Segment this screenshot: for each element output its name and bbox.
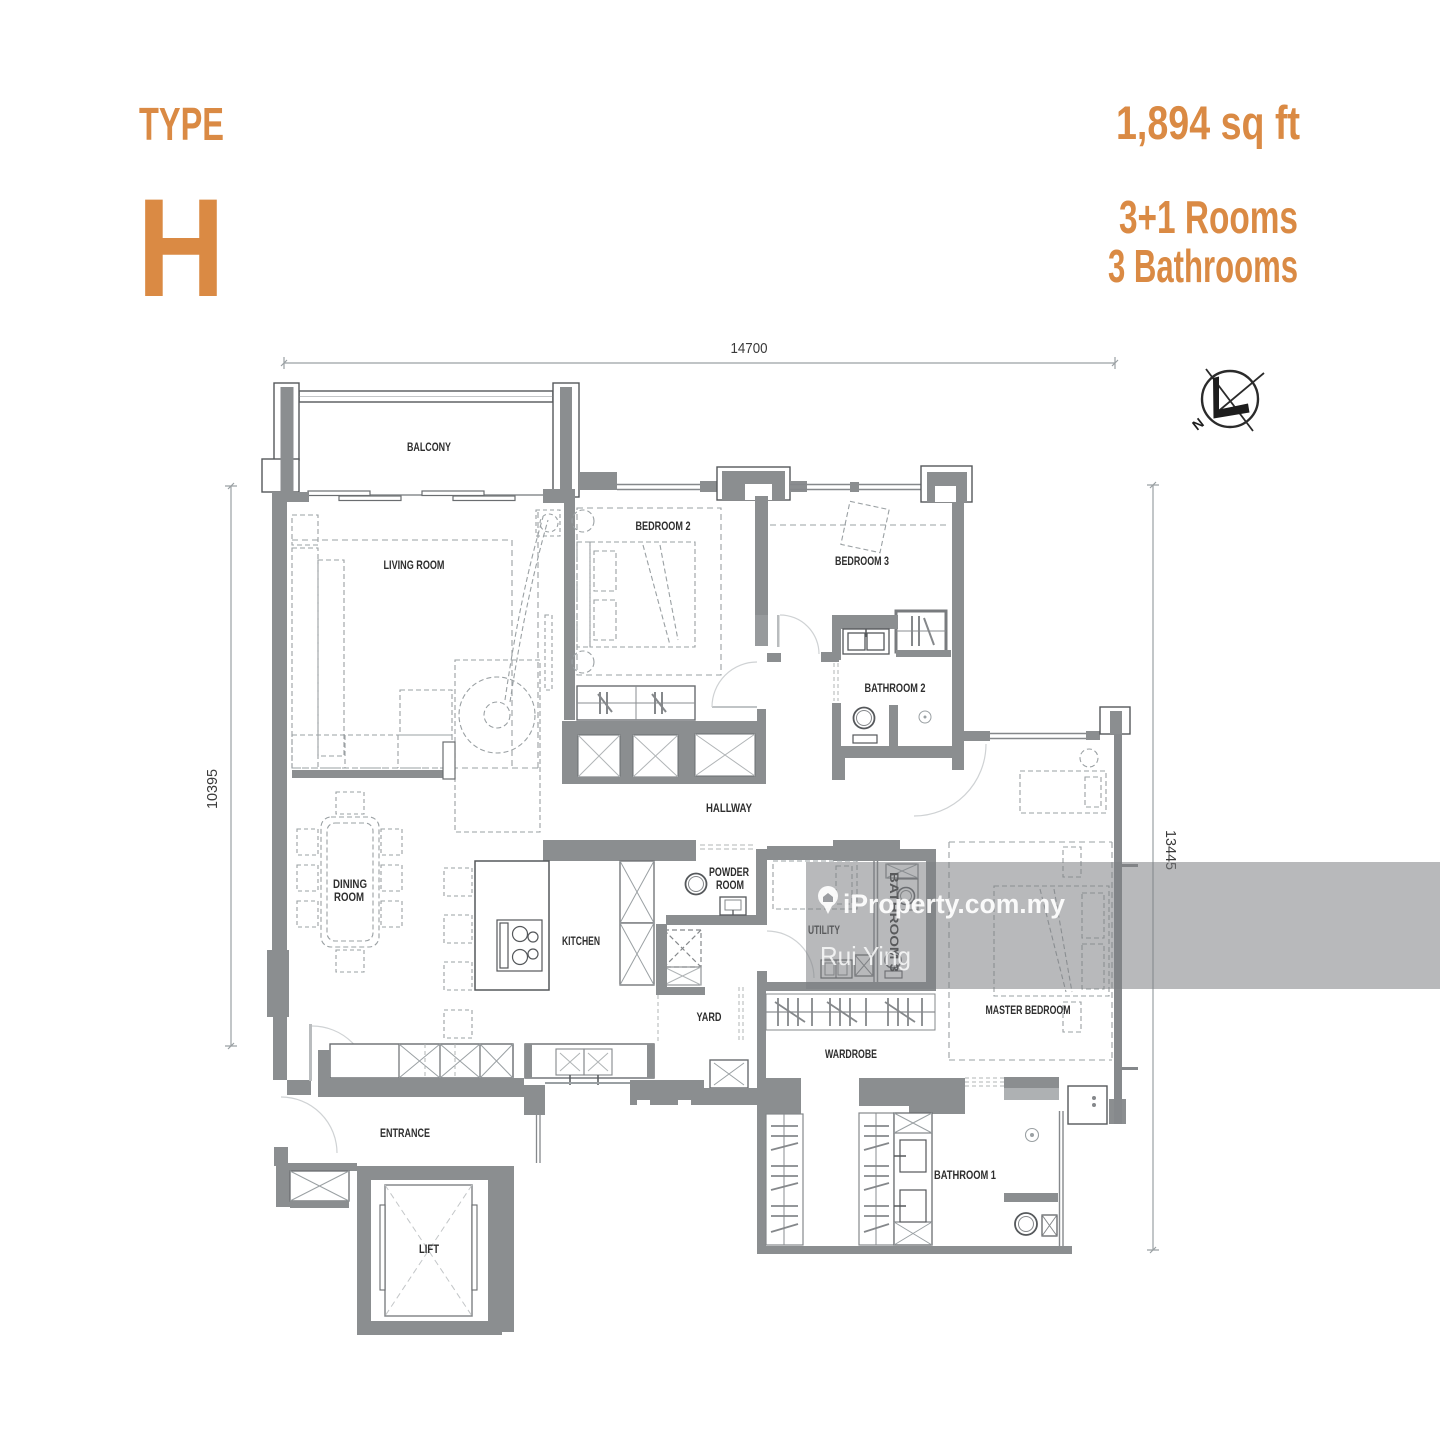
- svg-text:ROOM: ROOM: [716, 878, 744, 892]
- svg-text:BALCONY: BALCONY: [407, 440, 451, 454]
- svg-text:14700: 14700: [731, 340, 768, 357]
- svg-text:ENTRANCE: ENTRANCE: [380, 1126, 430, 1140]
- svg-text:MASTER BEDROOM: MASTER BEDROOM: [986, 1003, 1071, 1017]
- svg-text:BEDROOM 2: BEDROOM 2: [636, 519, 691, 533]
- svg-text:3+1 Rooms: 3+1 Rooms: [1119, 191, 1298, 243]
- svg-text:TYPE: TYPE: [139, 98, 224, 150]
- svg-text:LIFT: LIFT: [419, 1242, 440, 1256]
- svg-text:DINING: DINING: [333, 877, 367, 891]
- svg-text:1,894 sq ft: 1,894 sq ft: [1116, 96, 1300, 149]
- svg-text:10395: 10395: [204, 769, 221, 809]
- svg-text:LIVING ROOM: LIVING ROOM: [384, 558, 445, 572]
- svg-text:3 Bathrooms: 3 Bathrooms: [1108, 240, 1298, 292]
- svg-text:BATHROOM 2: BATHROOM 2: [865, 681, 926, 695]
- svg-text:H: H: [137, 169, 225, 326]
- svg-text:KITCHEN: KITCHEN: [562, 934, 600, 948]
- svg-text:ROOM: ROOM: [334, 890, 364, 904]
- svg-text:iProperty.com.my: iProperty.com.my: [843, 889, 1065, 919]
- svg-text:HALLWAY: HALLWAY: [706, 801, 752, 815]
- svg-text:WARDROBE: WARDROBE: [825, 1047, 877, 1061]
- svg-text:YARD: YARD: [697, 1010, 722, 1024]
- svg-text:POWDER: POWDER: [709, 865, 749, 879]
- svg-text:BEDROOM 3: BEDROOM 3: [835, 554, 889, 568]
- svg-text:BATHROOM 1: BATHROOM 1: [934, 1168, 996, 1182]
- svg-text:Rui Ying: Rui Ying: [820, 941, 911, 971]
